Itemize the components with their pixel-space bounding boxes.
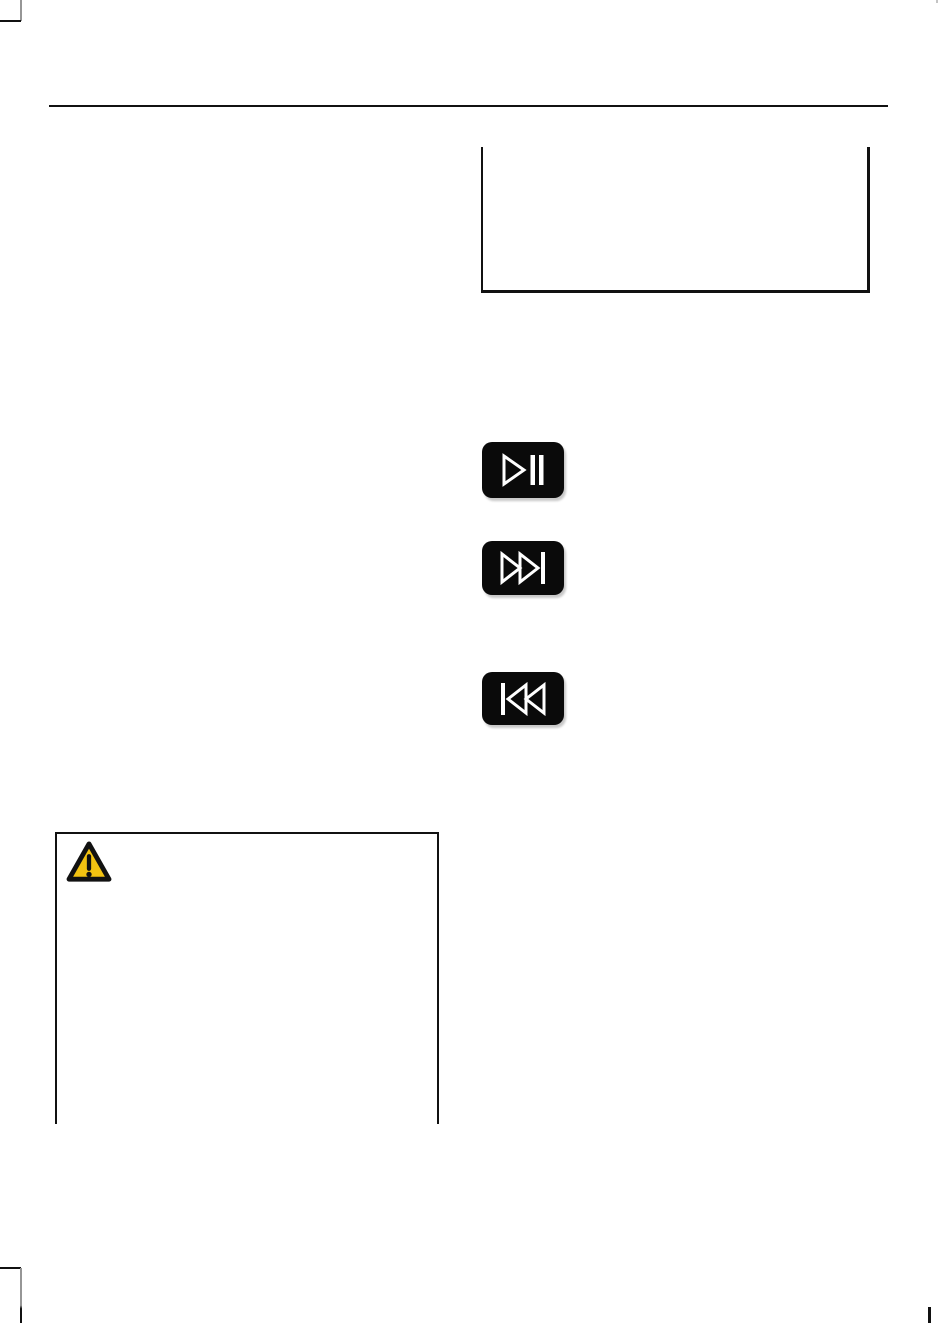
play-pause-button[interactable] xyxy=(482,442,564,498)
warning-triangle-icon xyxy=(66,841,112,883)
next-track-icon xyxy=(496,550,550,586)
play-pause-icon xyxy=(496,452,550,488)
crop-mark-top-left-horizontal xyxy=(0,20,21,22)
crop-mark-bottom-left-vertical xyxy=(20,1268,22,1323)
previous-track-icon xyxy=(496,681,550,717)
crop-mark-bottom-left-horizontal xyxy=(0,1267,21,1269)
figure-box xyxy=(481,147,870,293)
crop-mark-top-left-vertical xyxy=(20,0,22,21)
crop-mark-top-right-tick xyxy=(936,0,938,3)
header-rule xyxy=(49,105,888,107)
crop-mark-bottom-right-tick xyxy=(928,1307,931,1323)
seek-forward-button[interactable] xyxy=(482,541,564,595)
seek-backward-button[interactable] xyxy=(482,672,564,725)
manual-page xyxy=(0,0,950,1323)
warning-box xyxy=(55,832,439,1124)
